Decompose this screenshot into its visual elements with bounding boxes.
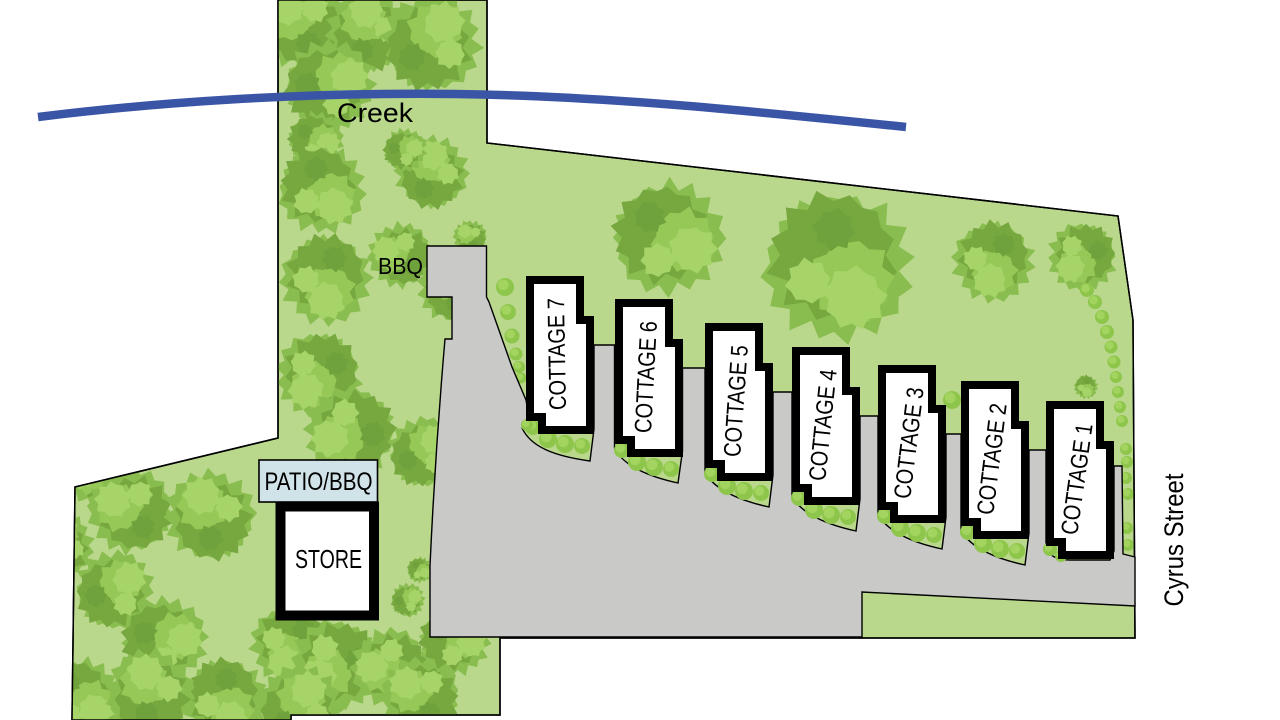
- svg-text:Creek: Creek: [337, 98, 414, 128]
- svg-text:BBQ: BBQ: [378, 253, 423, 279]
- svg-text:Cyrus Street: Cyrus Street: [1159, 473, 1189, 606]
- svg-text:STORE: STORE: [295, 544, 362, 574]
- svg-text:PATIO/BBQ: PATIO/BBQ: [265, 468, 373, 496]
- svg-text:COTTAGE 7: COTTAGE 7: [543, 298, 572, 410]
